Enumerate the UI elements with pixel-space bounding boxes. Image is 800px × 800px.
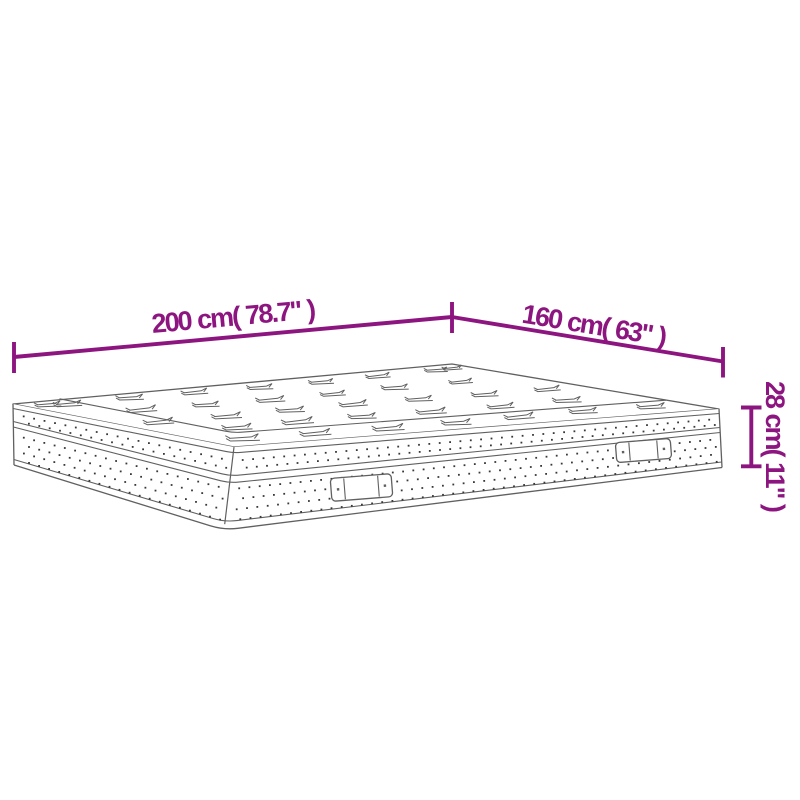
svg-text:28 cm( 11" ): 28 cm( 11" ) xyxy=(760,381,790,512)
svg-text:160 cm( 63" ): 160 cm( 63" ) xyxy=(520,299,668,352)
